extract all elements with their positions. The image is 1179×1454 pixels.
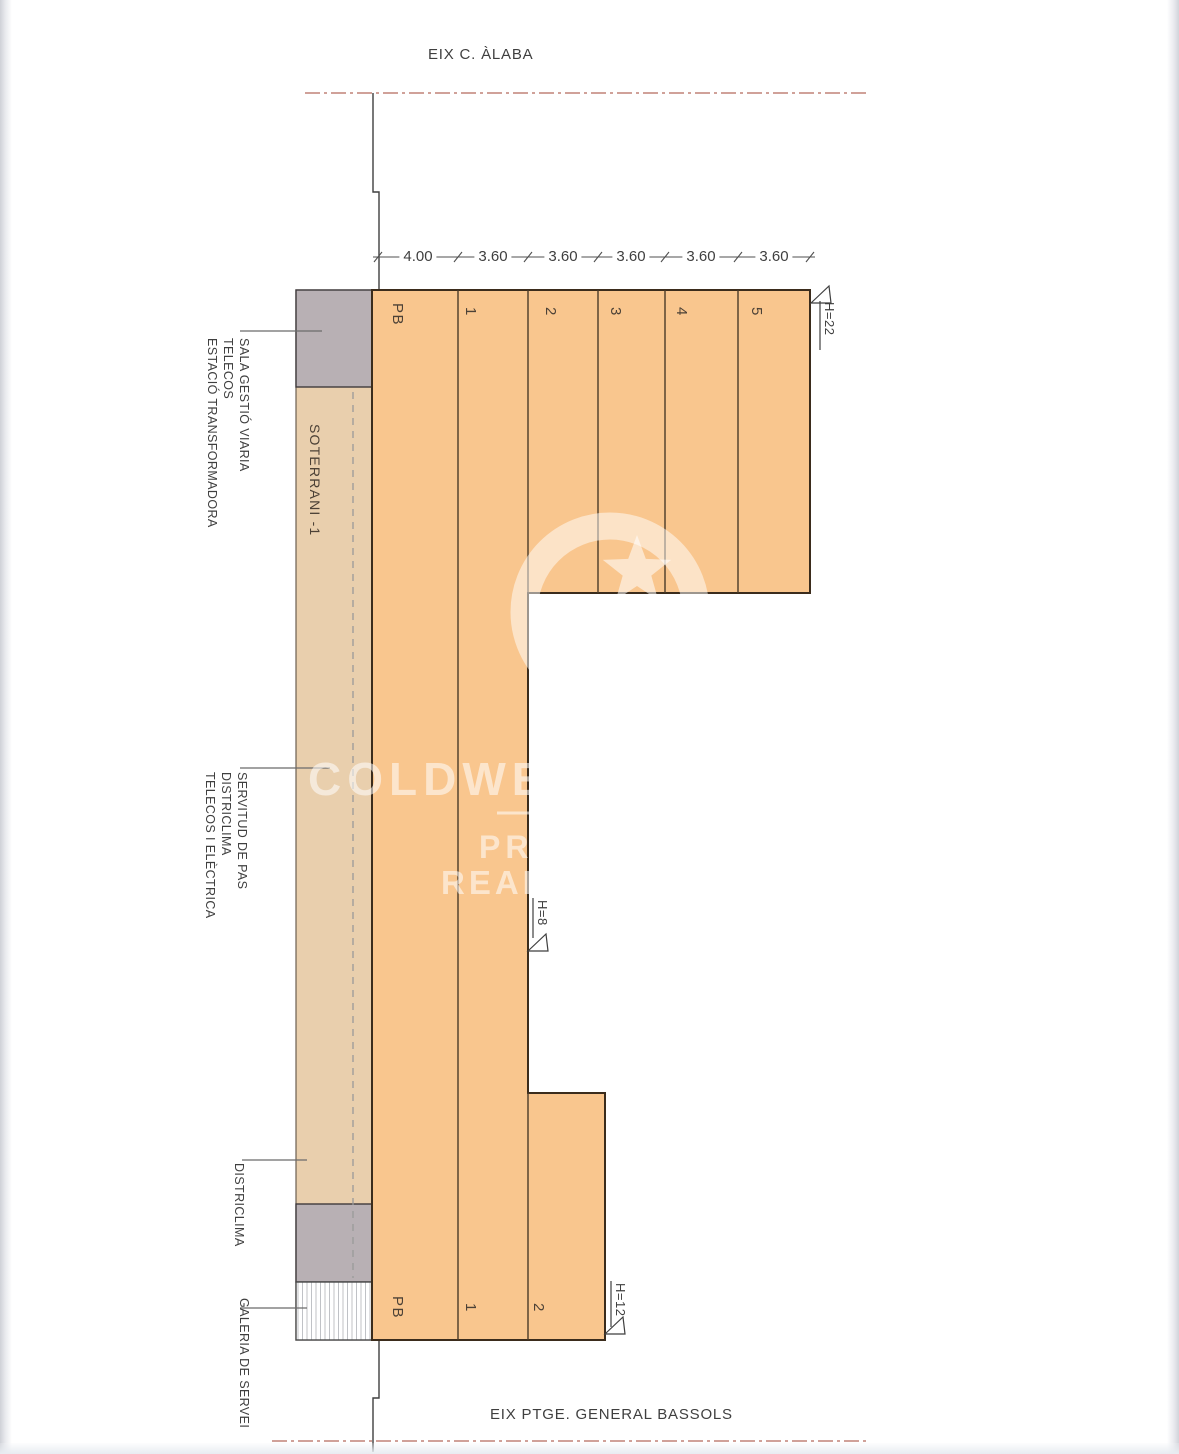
watermark-brand: COLDWELL	[308, 752, 617, 806]
annotation-districlima: DISTRICLIMA	[231, 1163, 247, 1247]
dimension-line	[373, 252, 815, 262]
technical-block-top	[296, 290, 372, 387]
height-label-h12: H=12	[613, 1283, 628, 1316]
page-edge-right	[1167, 0, 1179, 1454]
street-title-bottom: EIX PTGE. GENERAL BASSOLS	[490, 1406, 733, 1423]
annotation-line: TELECOS	[220, 338, 236, 528]
service-gallery-block	[296, 1282, 372, 1340]
building-outline	[372, 290, 810, 1340]
annotation-middle-group: SERVITUD DE PAS DISTRICLIMA TELECOS I EL…	[202, 772, 250, 919]
annotation-line: ESTACIÓ TRANSFORMADORA	[204, 338, 220, 528]
watermark-line3: REAL ESTATE	[441, 864, 709, 902]
technical-block-bottom	[296, 1204, 372, 1282]
dim-value: 3.60	[474, 248, 511, 265]
floor-label-top: 3	[607, 307, 624, 317]
floor-label-bottom: 1	[462, 1303, 479, 1313]
floor-label-top: 4	[673, 307, 690, 317]
floor-label-top: 2	[542, 307, 559, 317]
floor-label-bottom: PB	[389, 1296, 406, 1319]
annotation-line: DISTRICLIMA	[231, 1163, 247, 1247]
dim-value: 4.00	[399, 248, 436, 265]
page-edge-bottom	[0, 1443, 1179, 1454]
floor-label-top: 1	[462, 307, 479, 317]
floor-label-top: 5	[748, 307, 765, 317]
facade-line-bottom	[373, 1340, 379, 1452]
annotation-line: DISTRICLIMA	[218, 772, 234, 919]
facade-line-top	[373, 93, 379, 290]
street-title-top: EIX C. ÀLABA	[428, 46, 533, 63]
dim-value: 3.60	[544, 248, 581, 265]
annotation-top-group: SALA GESTIÓ VIARIA TELECOS ESTACIÓ TRANS…	[204, 338, 252, 528]
annotation-line: SALA GESTIÓ VIARIA	[236, 338, 252, 528]
soterrani-label: SOTERRANI -1	[307, 424, 323, 536]
annotation-line: GALERIA DE SERVEI	[236, 1298, 252, 1428]
section-drawing	[0, 0, 1179, 1454]
height-label-h8: H=8	[535, 900, 550, 926]
annotation-galeria: GALERIA DE SERVEI	[236, 1298, 252, 1428]
drawing-page: COLDWELL PRESTIGE REAL ESTATE EIX C. ÀLA…	[0, 0, 1179, 1454]
dim-value: 3.60	[755, 248, 792, 265]
floor-label-bottom: 2	[530, 1303, 547, 1313]
dim-value: 3.60	[612, 248, 649, 265]
floor-label-top: PB	[389, 303, 406, 326]
annotation-line: SERVITUD DE PAS	[234, 772, 250, 919]
annotation-line: TELECOS I ELÈCTRICA	[202, 772, 218, 919]
height-label-h22: H=22	[822, 302, 837, 335]
watermark-line2: PRESTIGE	[479, 829, 681, 866]
page-edge-left	[0, 0, 12, 1454]
dim-value: 3.60	[682, 248, 719, 265]
